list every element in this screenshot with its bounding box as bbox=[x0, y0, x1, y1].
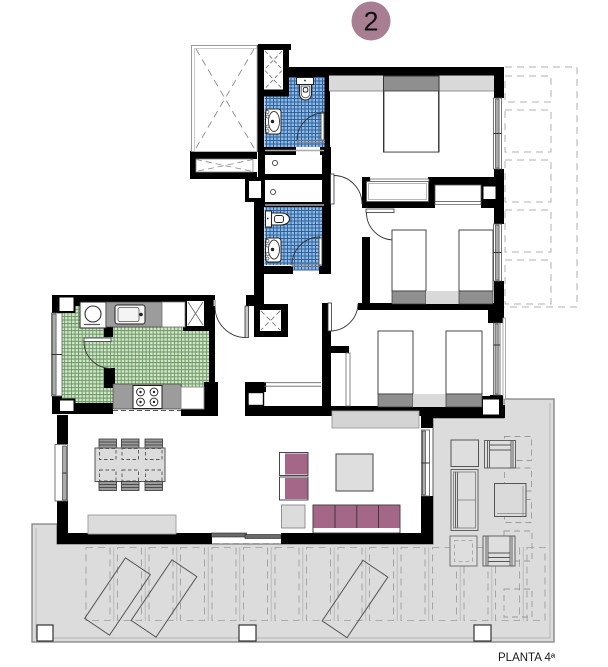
svg-text:2: 2 bbox=[363, 7, 378, 37]
svg-text:PLANTA 4ª: PLANTA 4ª bbox=[498, 652, 556, 664]
